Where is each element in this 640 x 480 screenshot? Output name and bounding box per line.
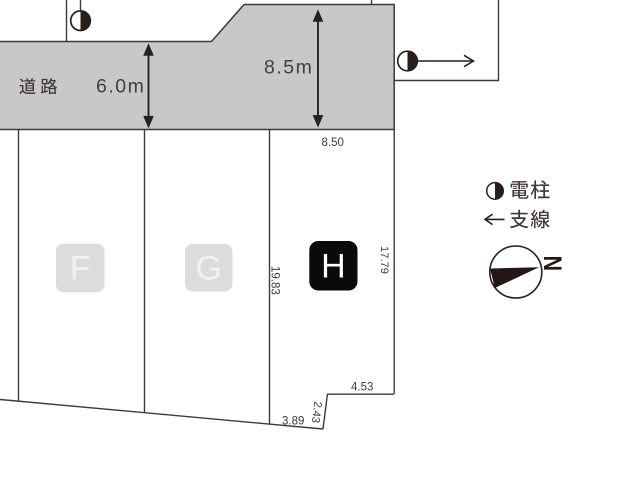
- svg-text:2.43: 2.43: [309, 401, 324, 424]
- svg-text:8.5m: 8.5m: [264, 57, 313, 79]
- svg-text:4.53: 4.53: [351, 382, 373, 394]
- svg-text:H: H: [321, 248, 346, 286]
- svg-text:17.79: 17.79: [378, 246, 390, 274]
- svg-text:19.83: 19.83: [269, 266, 281, 295]
- svg-text:6.0m: 6.0m: [96, 76, 145, 98]
- svg-text:N: N: [539, 256, 567, 271]
- svg-text:3.89: 3.89: [282, 416, 304, 428]
- svg-text:8.50: 8.50: [322, 137, 344, 149]
- svg-text:F: F: [70, 250, 91, 288]
- svg-text:G: G: [195, 250, 221, 288]
